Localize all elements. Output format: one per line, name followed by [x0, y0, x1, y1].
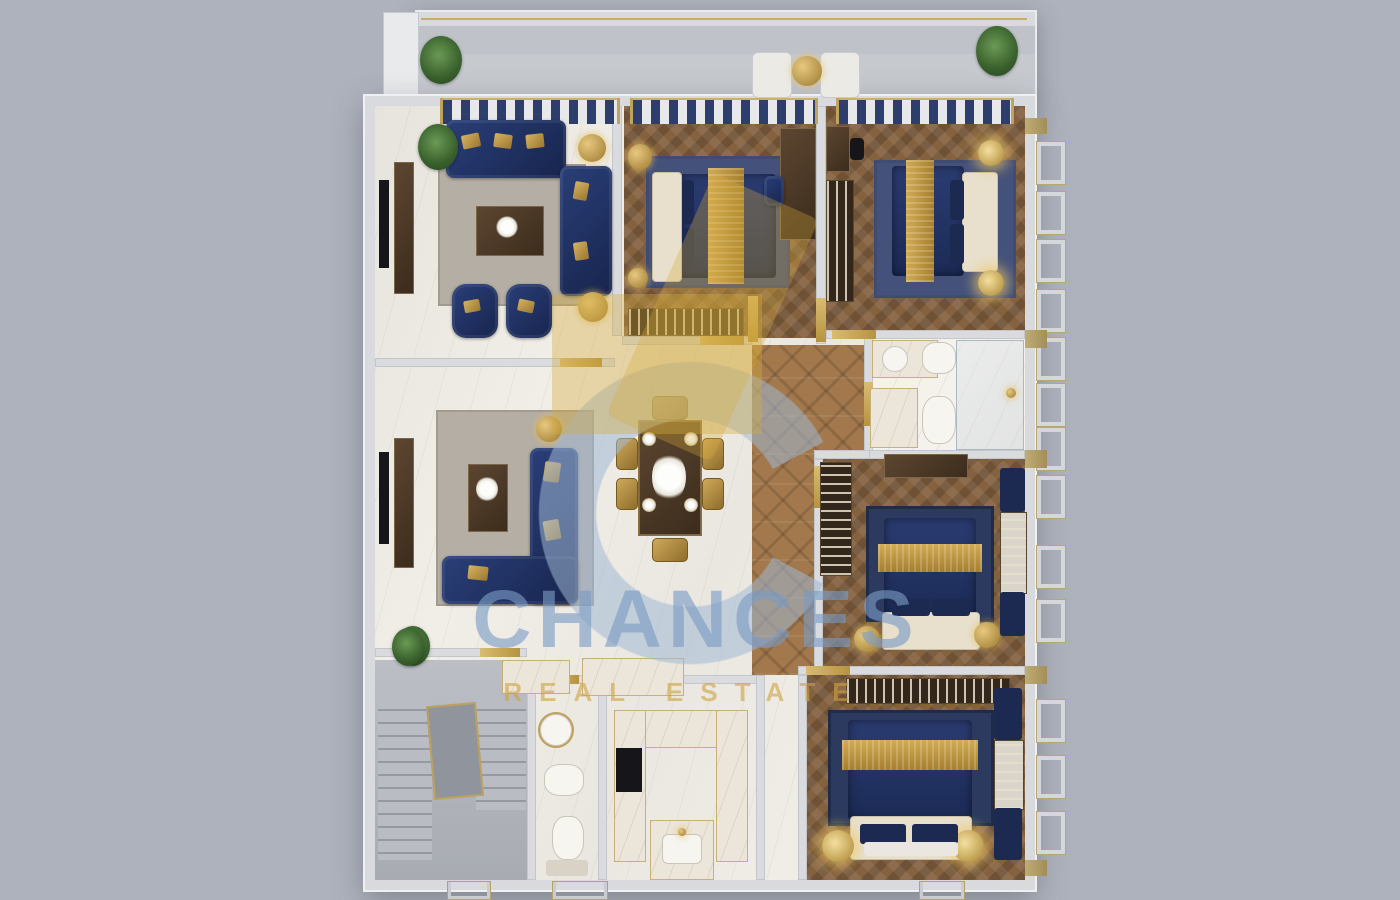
bedroom-4-pillow — [912, 824, 958, 844]
watermark-title: CHANCES — [456, 570, 936, 670]
facade-window-frame — [1037, 476, 1065, 518]
kitchen-cooktop — [616, 748, 642, 792]
bedroom-1-nightstand-lamp-top — [628, 144, 652, 170]
bedroom-4-pillow — [860, 824, 906, 844]
facade-gold-block — [1025, 330, 1047, 348]
floor-plan-render: CHANCES REAL ESTATE — [0, 0, 1400, 900]
bedroom-3-pillow — [932, 598, 970, 616]
kitchen-faucet — [678, 828, 686, 836]
entry-door-stub-2 — [553, 882, 607, 899]
bedroom-4-bed — [848, 720, 972, 820]
kitchen-sink — [662, 834, 702, 864]
exterior-wall-corner — [383, 12, 419, 98]
facade-gold-block — [1025, 450, 1047, 468]
kitchen-counter-right — [716, 710, 748, 862]
bathroom-toilet — [922, 342, 956, 374]
bedroom-4-pillow-white — [864, 842, 958, 856]
hall-arch-jamb-right — [816, 298, 826, 342]
bedroom-2-bed-runner — [906, 160, 934, 282]
terrace — [415, 10, 1037, 106]
bedroom-2-lamp-top — [978, 140, 1004, 166]
facade-window-frame — [1037, 240, 1065, 282]
terrace-plant-right — [976, 26, 1018, 76]
powder-mat — [546, 860, 588, 876]
terrace-armchair-left — [752, 52, 792, 98]
bedroom-2-wardrobe — [826, 180, 854, 302]
bedroom-3-curtain-bottom — [1000, 592, 1025, 636]
family-tv-console — [394, 438, 414, 568]
powder-toilet — [544, 764, 584, 796]
facade-window-frame — [1037, 142, 1065, 184]
facade-window-frame — [1037, 192, 1065, 234]
facade-window-frame — [1037, 756, 1065, 798]
stair-flight-left — [378, 698, 432, 860]
bedroom-2-headboard — [962, 172, 998, 272]
bedroom-1-pillow — [682, 180, 694, 224]
powder-bidet — [552, 816, 584, 860]
facade-gold-block — [1025, 860, 1047, 876]
living-side-table-top — [578, 134, 606, 162]
living-tv-console — [394, 162, 414, 294]
facade-window-frame — [1037, 546, 1065, 588]
wall-powder-east — [598, 682, 607, 880]
bedroom-1-nightstand-lamp-bottom — [628, 268, 648, 288]
bedroom-3-curtain-top — [1000, 468, 1025, 512]
bathroom-sink — [882, 346, 908, 372]
facade-window-frame — [1037, 384, 1065, 426]
sofa-cushion — [525, 133, 544, 149]
bathroom-bidet — [922, 396, 956, 444]
bedroom-2-desk-chair — [850, 138, 864, 160]
bedroom-4-curtain-bottom — [994, 808, 1022, 860]
family-tv — [379, 452, 389, 544]
facade-gold-block — [1025, 666, 1047, 684]
powder-sink — [540, 714, 572, 746]
stair-plant — [392, 628, 424, 666]
stair-void — [426, 702, 484, 800]
bedroom-3-dresser — [884, 454, 968, 478]
door-bedroom2 — [832, 330, 876, 339]
sofa-cushion — [493, 133, 513, 149]
watermark-gold-square — [552, 294, 762, 434]
bedroom-4-curtain-top — [994, 688, 1022, 740]
coffee-table-decor — [496, 216, 518, 238]
bedroom-2-desk — [826, 126, 850, 172]
bedroom-3-nightstand-right — [974, 622, 1000, 648]
facade-gold-block — [1025, 118, 1047, 134]
bathroom-counter-2 — [870, 388, 918, 448]
bedroom-2-pillow — [950, 180, 964, 220]
bedroom-2-lamp-bottom — [978, 270, 1004, 296]
living-tv — [379, 180, 389, 268]
bedroom-4-window-blind — [994, 740, 1024, 810]
living-plant — [418, 124, 458, 170]
shower-head — [1006, 388, 1016, 398]
bedroom-4-lamp-left — [822, 830, 854, 862]
bedroom-3-bed-runner — [878, 544, 982, 572]
watermark-subtitle: REAL ESTATE — [500, 674, 870, 710]
terrace-plant-left — [420, 36, 462, 84]
terrace-table — [792, 56, 822, 86]
bedroom-4-bed-runner — [842, 740, 978, 770]
bedroom-2-pillow — [950, 224, 964, 264]
terrace-armchair-right — [820, 52, 860, 98]
bedroom-3-window-blind — [1000, 512, 1027, 594]
sofa-cushion — [573, 241, 589, 261]
facade-window-frame — [1037, 700, 1065, 742]
facade-window-frame — [1037, 812, 1065, 854]
terrace-parapet-trim — [421, 18, 1027, 20]
bedroom-4-wardrobe — [846, 678, 1010, 704]
facade-window-frame — [1037, 600, 1065, 642]
facade-window-frame — [1037, 290, 1065, 332]
entry-door-stub-1 — [448, 882, 490, 899]
family-table-decor — [476, 476, 498, 502]
bedroom-1-window-blinds — [630, 98, 818, 124]
bedroom-2-window-blinds — [836, 98, 1014, 124]
entry-door-stub-3 — [920, 882, 964, 899]
